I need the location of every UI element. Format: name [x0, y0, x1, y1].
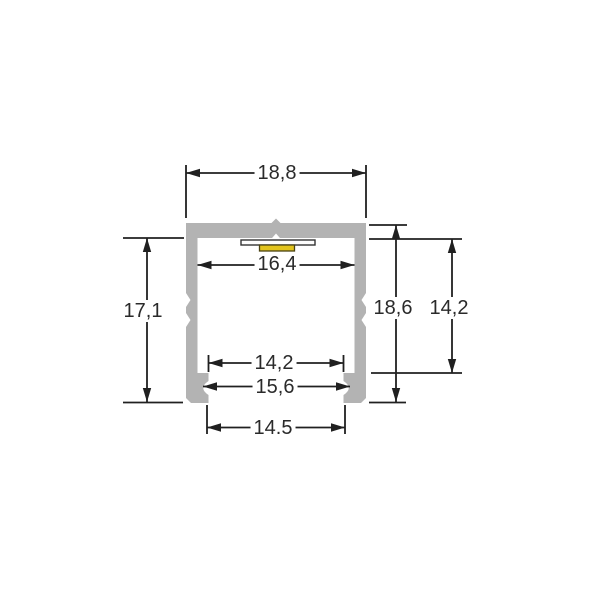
dimension-label-groove-width: 15,6 [253, 376, 298, 398]
arrow-right-icon [352, 169, 366, 177]
arrow-left-icon [186, 169, 200, 177]
led-strip-pcb [241, 240, 315, 245]
arrow-right-icon [330, 359, 344, 367]
dimension-label-inner-width: 16,4 [255, 253, 300, 275]
dimension-label-total-height: 18,6 [371, 297, 416, 319]
arrow-down-icon [392, 388, 400, 402]
arrow-up-icon [392, 225, 400, 239]
led-chip [260, 245, 295, 251]
dimension-label-bottom-width: 14.5 [251, 417, 296, 439]
arrow-right-icon [341, 261, 355, 269]
arrow-left-icon [198, 261, 212, 269]
dimension-label-left-height: 17,1 [121, 300, 166, 322]
dimension-label-top-width: 18,8 [255, 162, 300, 184]
arrow-left-icon [207, 423, 221, 431]
center-mark-top [272, 219, 281, 224]
profile-drawing [0, 0, 600, 600]
arrow-right-icon [331, 423, 345, 431]
arrow-down-icon [448, 359, 456, 373]
drawing-canvas: 18,8 16,4 17,1 18,6 14,2 14,2 15,6 14.5 [0, 0, 600, 600]
dimension-label-bottom-inner-width: 14,2 [252, 352, 297, 374]
arrow-up-icon [448, 239, 456, 253]
arrow-left-icon [209, 359, 223, 367]
arrow-down-icon [143, 388, 151, 402]
dimension-label-right-inner-height: 14,2 [427, 297, 472, 319]
arrow-up-icon [143, 238, 151, 252]
